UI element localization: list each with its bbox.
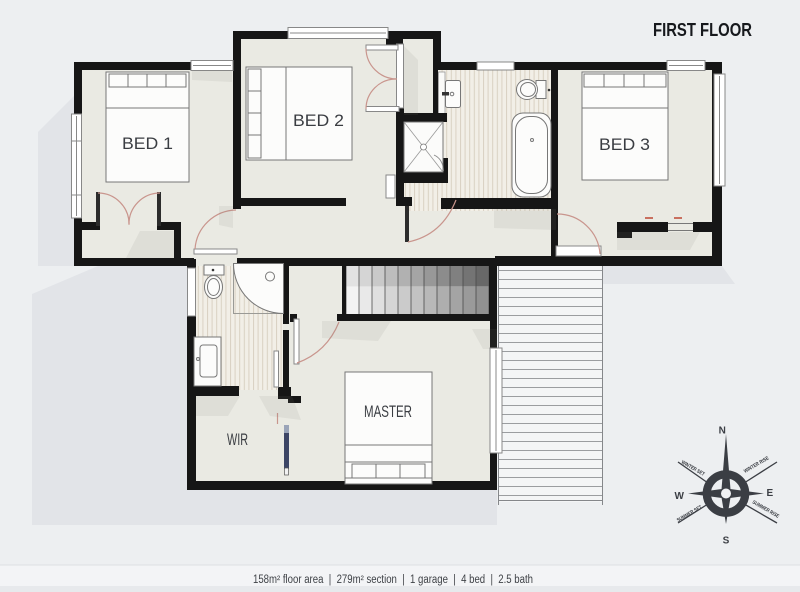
svg-text:BED 3: BED 3 [599, 135, 650, 154]
svg-text:BED 1: BED 1 [122, 134, 173, 153]
svg-text:158m² floor area | 279m² sec: 158m² floor area | 279m² section | 1 gar… [253, 574, 533, 586]
svg-text:MASTER: MASTER [364, 402, 412, 421]
svg-text:W: W [675, 491, 685, 502]
svg-text:E: E [767, 488, 774, 499]
svg-text:FIRST FLOOR: FIRST FLOOR [653, 20, 752, 40]
svg-text:BED 2: BED 2 [293, 111, 344, 130]
svg-text:N: N [719, 426, 726, 437]
svg-text:WIR: WIR [227, 430, 248, 449]
svg-text:S: S [723, 536, 730, 547]
